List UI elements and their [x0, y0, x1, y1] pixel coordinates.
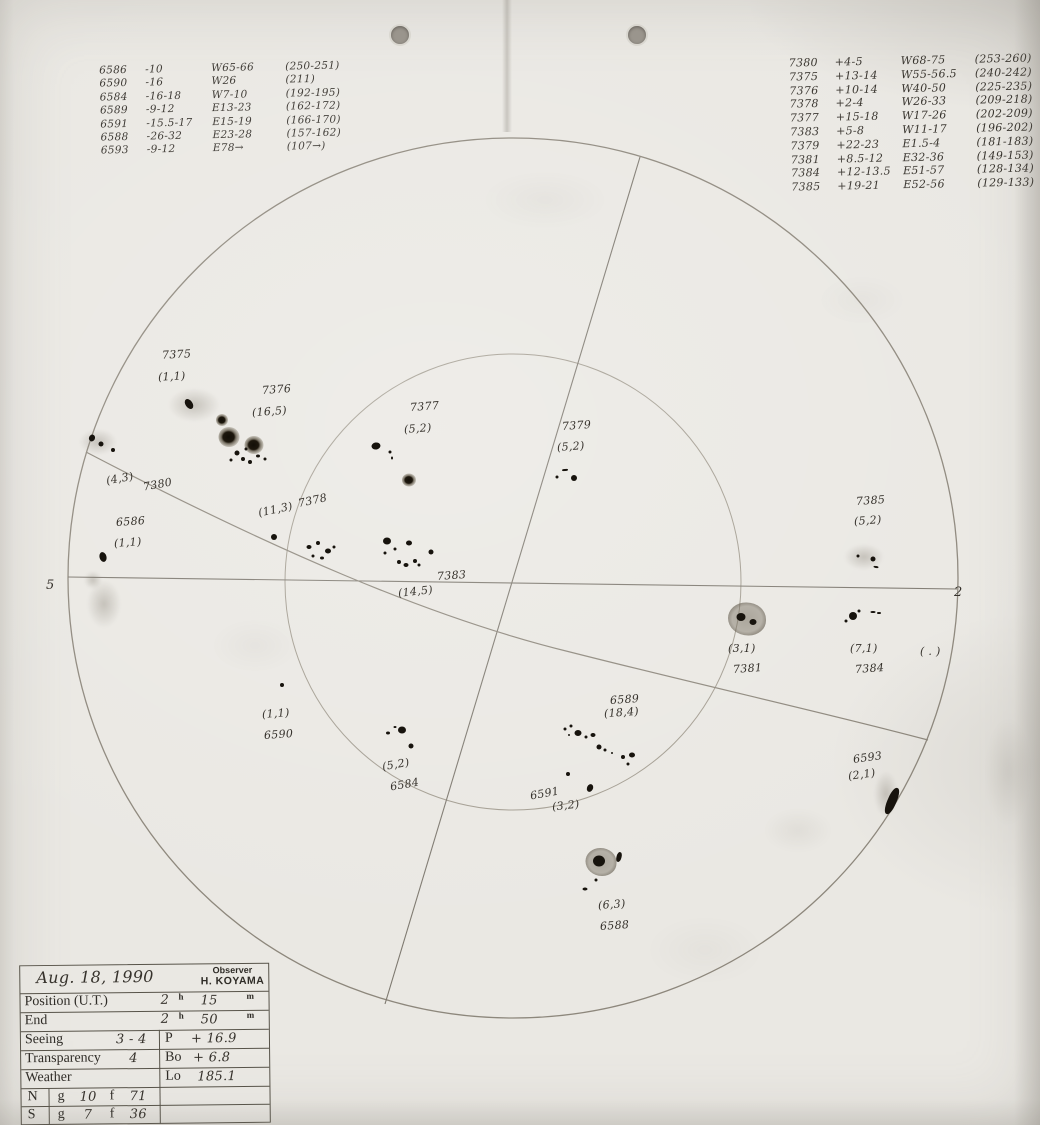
observer-block: Observer H. KOYAMA [201, 965, 265, 988]
group-number: 7375 [789, 69, 835, 84]
group-number: 6589 [100, 104, 146, 118]
sunspot-7383-dot [404, 563, 409, 567]
group-label-7381: 7381 [733, 661, 763, 676]
group-label-6590: (1,1) [262, 706, 290, 721]
north-spot-count: 71 [129, 1089, 146, 1104]
group-number: 6586 [99, 64, 145, 78]
carrington-range: (107→) [287, 140, 326, 154]
group-number: 6584 [100, 90, 146, 104]
sunspot-7378-dot [320, 557, 324, 560]
carrington-range: (253-260) [975, 51, 1032, 66]
sunspot-7376-ring [219, 427, 240, 447]
sunspot-7383-dot [383, 538, 391, 545]
south-group-count: 7 [84, 1108, 93, 1123]
group-label-7379: 7379 [562, 418, 592, 433]
sunspot-7376-dot [241, 457, 245, 461]
sunspot-6589-dot [564, 728, 567, 731]
hour-unit: h [178, 992, 183, 1002]
group-label-7381: (3,1) [728, 642, 756, 655]
position-hour-value: 2 [160, 993, 169, 1008]
group-label-7376: (16,5) [252, 404, 288, 419]
latitude-band-curve [86, 452, 928, 740]
position-minute-value: 15 [200, 993, 217, 1008]
group-number: 6588 [100, 131, 146, 145]
minute-unit: m [247, 1010, 255, 1020]
carrington-range: (211) [285, 73, 315, 87]
group-label-6586: (1,1) [114, 535, 142, 550]
sunspot-7381-pen [728, 603, 766, 636]
groups-label: g [57, 1089, 64, 1105]
groups-label: g [58, 1107, 65, 1123]
sunspot-7383-dot [384, 552, 387, 555]
latitude-range: +2-4 [835, 96, 901, 111]
sunspot-7381-dot [750, 619, 757, 625]
sunspot-7377-dot [389, 451, 392, 454]
sunspot-7383-dot [429, 550, 434, 555]
carrington-range: (192-195) [286, 86, 341, 101]
group-label-7379: (5,2) [557, 439, 585, 454]
observation-table: Aug. 18, 1990 Observer H. KOYAMA Positio… [19, 963, 271, 1125]
sunspot-7384-dot [858, 610, 861, 613]
latitude-range: -15.5-17 [146, 116, 212, 131]
group-number: 6591 [100, 117, 146, 131]
sunspot-7383-dot [394, 548, 397, 551]
group-number: 7378 [789, 97, 835, 112]
north-groups-legend: 7380+4-5W68-75(253-260)7375+13-14W55-56.… [789, 51, 1035, 194]
punch-hole [391, 26, 409, 44]
sunspot-7383-dot [418, 564, 421, 567]
sunspot-7376-ring [245, 436, 264, 454]
sunspot-6588-dot [583, 888, 588, 891]
south-spot-count: 36 [130, 1107, 147, 1122]
latitude-range: +15-18 [836, 109, 902, 124]
latitude-range: -9-12 [146, 102, 212, 117]
group-label-6589: (18,4) [604, 705, 640, 720]
column-divider [48, 1088, 49, 1107]
group-label-7384: 7384 [855, 661, 885, 676]
column-divider [159, 1030, 160, 1050]
sunspot-7376-dot [245, 448, 248, 451]
b0-value: + 6.8 [193, 1050, 230, 1065]
sunspot-7377-ring [402, 474, 416, 487]
group-label-7385: 7385 [856, 493, 886, 508]
carrington-range: (157-162) [286, 127, 341, 142]
carrington-range: (225-235) [975, 79, 1032, 94]
punch-hole [628, 26, 646, 44]
group-number: 7385 [791, 180, 837, 195]
sunspot-6589-dot [591, 733, 596, 737]
group-label-7385: (5,2) [854, 513, 882, 528]
table-row-transparency: Transparency 4 Bo + 6.8 [21, 1048, 269, 1070]
sunspot-6584-dot [409, 744, 414, 749]
sunspot-7384-dot [845, 620, 848, 623]
b0-label: Bo [165, 1050, 182, 1066]
table-row-end: End 2 h 50 m [21, 1010, 269, 1032]
sunspot-7385-dot [871, 557, 876, 562]
limb-label-left: 5 [46, 578, 55, 593]
sunspot-7383-dot [397, 560, 401, 564]
latitude-range: +19-21 [837, 178, 903, 193]
sunspot-7376-dot [230, 459, 233, 462]
group-number: 7377 [790, 111, 836, 126]
sunspot-6591-dot [566, 772, 570, 776]
limb-label-right: 2 [954, 585, 963, 600]
longitude-range: E52-56 [903, 177, 977, 192]
date-value: Aug. 18, 1990 [36, 967, 154, 987]
sunspot-7385-dot [857, 555, 860, 558]
sunspot-7381-dot [737, 613, 746, 621]
latitude-range: +22-23 [836, 137, 902, 152]
table-row-seeing: Seeing 3 - 4 P + 16.9 [21, 1029, 269, 1051]
sunspot-6589-dot [629, 753, 635, 758]
p-angle-label: P [165, 1031, 173, 1047]
transparency-label: Transparency [25, 1050, 101, 1067]
sunspot-6588-dot [593, 856, 605, 867]
column-divider [160, 1105, 161, 1124]
minute-unit: m [246, 991, 254, 1001]
sunspot-6584-dot [394, 726, 397, 728]
sunspot-7377-dot [391, 457, 393, 460]
latitude-range: +4-5 [835, 54, 901, 69]
latitude-range: -16-18 [146, 89, 212, 104]
group-number: 7379 [790, 138, 836, 153]
sunspot-7380-dot [111, 448, 115, 452]
sunspot-6589-dot [570, 725, 573, 728]
carrington-range: (166-170) [286, 113, 341, 128]
group-number: 7381 [791, 152, 837, 167]
sunspot-6589-dot [568, 734, 570, 736]
group-label-7376: 7376 [262, 382, 292, 397]
group-number: 7380 [789, 56, 835, 71]
latitude-range: +8.5-12 [837, 151, 903, 166]
hour-unit: h [179, 1011, 184, 1021]
carrington-range: (149-153) [977, 148, 1034, 163]
column-divider [159, 1068, 160, 1088]
latitude-range: -16 [145, 76, 211, 91]
group-label-6590: 6590 [264, 727, 294, 742]
south-groups-legend: 6586-10W65-66(250-251)6590-16W26(211)658… [99, 59, 341, 158]
latitude-range: +10-14 [835, 82, 901, 97]
sunspot-6589-dot [597, 745, 602, 750]
latitude-range: +5-8 [836, 123, 902, 138]
sunspot-6584-dot [386, 732, 390, 735]
group-label-6588: (6,3) [598, 897, 626, 912]
sunspot-7383-dot [406, 541, 412, 546]
table-row-position: Position (U.T.) 2 h 15 m [20, 991, 268, 1013]
l0-label: Lo [165, 1069, 181, 1085]
observer-name: H. KOYAMA [201, 975, 265, 988]
column-divider [159, 1049, 160, 1069]
p-angle-value: + 16.9 [191, 1031, 237, 1046]
transparency-value: 4 [129, 1051, 138, 1066]
group-label-7383: 7383 [437, 568, 467, 583]
sunspot-7376-dot [256, 455, 260, 458]
sunspot-7383-dot [413, 559, 417, 563]
group-label-7377: (5,2) [404, 421, 432, 436]
sunspot-7378-dot [316, 541, 320, 545]
sunspot-7376-dot [248, 460, 252, 464]
sunspot-6584-dot [398, 727, 406, 734]
sunspot-7380-dot [99, 442, 104, 447]
seeing-value: 3 - 4 [116, 1032, 147, 1047]
sunspot-6589-dot [575, 730, 582, 736]
sunspot-7376-ring [216, 414, 228, 426]
group-label-6588: 6588 [600, 918, 630, 933]
seeing-label: Seeing [25, 1032, 63, 1048]
column-divider [159, 1087, 160, 1106]
sunspot-6589-dot [611, 752, 613, 754]
group-number: 7383 [790, 125, 836, 140]
central-meridian-line [385, 157, 640, 1004]
carrington-range: (202-209) [976, 107, 1033, 122]
sunspot-7379-dot [556, 476, 559, 479]
observer-label: Observer [201, 965, 265, 976]
longitude-range: E78→ [213, 141, 287, 156]
latitude-range: +12-13.5 [837, 165, 903, 180]
sunspot-7379-dot [571, 475, 577, 481]
sunspot-7384-dash [871, 611, 876, 613]
l0-value: 185.1 [197, 1069, 236, 1084]
sunspot-observation-sheet: 6586-10W65-66(250-251)6590-16W26(211)658… [0, 0, 1040, 1125]
carrington-range: (209-218) [975, 93, 1032, 108]
end-minute-value: 50 [201, 1012, 218, 1027]
column-divider [49, 1106, 50, 1125]
sunspot-6586-smudge [84, 571, 102, 589]
sunspot-7378-dot [312, 555, 315, 558]
table-row-weather: Weather Lo 185.1 [21, 1067, 269, 1089]
group-label-7384: (7,1) [850, 642, 878, 655]
sunspot-7376-dot [264, 458, 267, 461]
position-label: Position (U.T.) [24, 993, 108, 1010]
inner-reference-circle [285, 354, 741, 810]
sunspot-7378-dot [271, 534, 277, 540]
sunspot-7378-dot [333, 546, 336, 549]
carrington-range: (129-133) [977, 176, 1034, 191]
north-group-count: 10 [79, 1090, 96, 1105]
sunspot-7384-dash [877, 612, 881, 614]
sunspot-6589-dot [621, 755, 625, 759]
carrington-range: (240-242) [975, 65, 1032, 80]
sunspot-7376-dot [235, 451, 240, 456]
end-label: End [25, 1013, 48, 1029]
north-label: N [27, 1089, 37, 1105]
table-row-south-counts: S g 7 f 36 [22, 1104, 270, 1125]
limb-annotation: ( . ) [920, 645, 941, 658]
carrington-range: (181-183) [976, 134, 1033, 149]
end-hour-value: 2 [161, 1012, 170, 1027]
group-label-6586: 6586 [116, 514, 146, 529]
group-number: 6590 [99, 77, 145, 91]
latitude-range: -9-12 [147, 143, 213, 158]
group-label-7377: 7377 [410, 399, 440, 414]
south-label: S [28, 1107, 36, 1123]
group-number: 7376 [789, 83, 835, 98]
group-number: 7384 [791, 166, 837, 181]
carrington-range: (250-251) [285, 59, 340, 74]
sunspot-7378-dot [325, 549, 331, 554]
sunspot-7378-dot [307, 545, 312, 549]
sunspot-6589-dot [604, 749, 607, 752]
group-label-7375: (1,1) [158, 369, 186, 383]
sunspot-7384-dot [849, 612, 857, 620]
sunspot-6589-dot [627, 763, 630, 766]
carrington-range: (128-134) [977, 162, 1034, 177]
spots-label: f [110, 1106, 115, 1122]
sunspot-6590-dot [280, 683, 284, 687]
latitude-range: -26-32 [146, 129, 212, 144]
group-label-7375: 7375 [162, 347, 192, 362]
group-number: 6593 [101, 144, 147, 158]
carrington-range: (196-202) [976, 120, 1033, 135]
sunspot-7375-smudge [168, 388, 220, 422]
spots-label: f [109, 1088, 114, 1104]
latitude-range: +13-14 [835, 68, 901, 83]
latitude-range: -10 [145, 62, 211, 77]
table-row-date: Aug. 18, 1990 Observer H. KOYAMA [20, 964, 268, 994]
sunspot-6588-dot [595, 879, 598, 882]
sunspot-6589-dot [585, 736, 588, 739]
weather-label: Weather [25, 1070, 71, 1086]
carrington-range: (162-172) [286, 100, 341, 115]
